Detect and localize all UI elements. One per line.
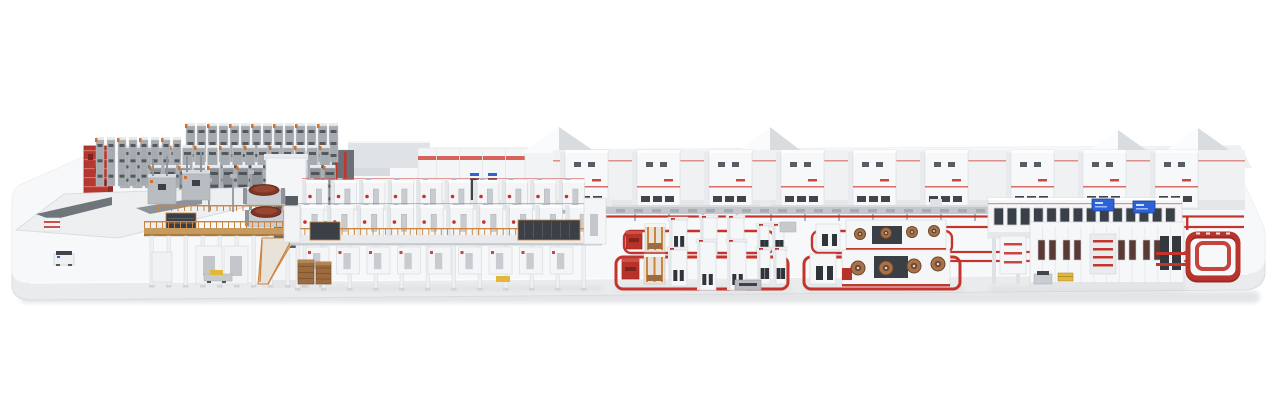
- rack-slot: [326, 172, 335, 175]
- support-column: [452, 242, 456, 288]
- panel: [298, 266, 314, 267]
- column-foot: [399, 288, 405, 291]
- railing-post: [171, 205, 172, 211]
- railing-post: [478, 228, 479, 235]
- rack-cap: [208, 165, 220, 168]
- rack-slot: [153, 144, 158, 147]
- red-valve: [430, 251, 433, 254]
- tall-window: [1049, 240, 1056, 260]
- cabinet-vent: [665, 196, 674, 202]
- mast-head: [230, 174, 236, 178]
- cabinet-handle: [862, 162, 869, 167]
- rack-orange-tick: [194, 146, 197, 150]
- mast: [232, 178, 234, 212]
- rack-slot: [109, 144, 114, 147]
- panel: [563, 180, 585, 183]
- panel: [450, 205, 473, 208]
- rack-slot: [109, 175, 114, 178]
- panel: [56, 264, 60, 266]
- small-cabinet: [44, 218, 60, 231]
- railing-post: [258, 221, 259, 228]
- panel: [709, 150, 752, 153]
- red-shelf: [1004, 252, 1022, 255]
- railing-post: [385, 228, 386, 235]
- board-stack: [760, 200, 770, 206]
- panel: [207, 281, 211, 283]
- red-valve: [565, 195, 569, 199]
- railing-post: [435, 228, 436, 235]
- rack-cap: [150, 165, 162, 168]
- cabinet-vent: [737, 196, 746, 202]
- panel: [281, 188, 285, 204]
- rack-slot: [287, 130, 293, 133]
- rack-slot: [276, 142, 282, 145]
- railing-post: [490, 228, 491, 235]
- rack-orange-tick: [207, 166, 210, 170]
- cabinet-handle: [718, 162, 725, 167]
- cabinet-handle: [646, 162, 653, 167]
- module-vent: [542, 203, 547, 205]
- support-column: [252, 236, 256, 286]
- panel: [200, 152, 202, 172]
- railing-post: [162, 221, 163, 228]
- panel: [551, 222, 552, 238]
- panel: [542, 222, 543, 238]
- rack-slot: [221, 130, 227, 133]
- rack-cap: [219, 123, 228, 126]
- tall-window: [1063, 240, 1070, 260]
- panel: [925, 150, 968, 153]
- panel: [150, 180, 153, 183]
- rack-cap: [129, 137, 137, 140]
- cabinet-vent: [809, 196, 818, 202]
- panel: [168, 218, 194, 219]
- railing-post: [210, 221, 211, 228]
- support-column: [184, 236, 188, 286]
- rack-cap: [223, 165, 235, 168]
- gable-right: [559, 127, 597, 153]
- red-valve: [508, 195, 512, 199]
- column-foot: [347, 288, 353, 291]
- railing-post: [404, 228, 405, 235]
- rack-orange-tick: [317, 124, 320, 128]
- tall-window: [1118, 240, 1125, 260]
- red-valve: [400, 251, 403, 254]
- conveyor-slat: [760, 209, 769, 213]
- conveyor-slat: [832, 209, 841, 213]
- rack-slot: [209, 152, 216, 155]
- row-pinstripe: [297, 203, 592, 204]
- machine-red-base: [842, 284, 950, 287]
- connector-conveyor: [780, 222, 796, 232]
- cabinet-red-stripe: [853, 186, 896, 188]
- rack-slot: [188, 130, 194, 133]
- tower-window: [765, 268, 769, 279]
- panel: [1095, 206, 1107, 208]
- rack-cap: [197, 123, 206, 126]
- tall-window: [1129, 240, 1136, 260]
- conveyor-slat: [652, 209, 661, 213]
- railing-post: [503, 228, 504, 235]
- cabinet-handle: [804, 162, 811, 167]
- railing-post: [249, 205, 250, 211]
- rack-orange-tick: [117, 138, 120, 142]
- railing-post: [472, 228, 473, 235]
- railing-post: [497, 228, 498, 235]
- rack-slot: [175, 144, 180, 147]
- rack-slot: [109, 159, 114, 162]
- rack-slot: [210, 172, 219, 175]
- panel: [565, 150, 608, 153]
- rack-slot: [184, 152, 191, 155]
- module-vent: [338, 178, 343, 180]
- rack-orange-tick: [236, 166, 239, 170]
- railing-post: [184, 205, 185, 211]
- module-side: [386, 205, 390, 236]
- rack-cap: [241, 123, 250, 126]
- railing-post: [252, 221, 253, 228]
- conveyor-slat: [706, 209, 715, 213]
- railing-post: [264, 221, 265, 228]
- rack-slot: [210, 142, 216, 145]
- tower-side: [773, 250, 776, 284]
- railing-post: [165, 205, 166, 211]
- red-valve: [451, 195, 455, 199]
- rack-cap: [252, 165, 264, 168]
- cabinet-handle: [1034, 162, 1041, 167]
- railing-post: [180, 221, 181, 228]
- column-foot: [503, 288, 509, 291]
- rack-slot: [221, 142, 227, 145]
- red-valve: [422, 220, 426, 224]
- cabinet-handle: [660, 162, 667, 167]
- cabinet-vent: [953, 196, 962, 202]
- panel: [1037, 271, 1049, 275]
- panel: [853, 150, 896, 153]
- panel: [420, 180, 442, 183]
- red-valve: [452, 220, 456, 224]
- railing-post: [178, 205, 179, 211]
- display-screen: [1133, 201, 1155, 213]
- railing-post: [276, 221, 277, 228]
- rack-slot: [232, 130, 238, 133]
- panel: [1136, 204, 1144, 206]
- railing-post: [204, 205, 205, 211]
- rack-orange-tick: [294, 146, 297, 150]
- red-valve: [363, 220, 367, 224]
- panel: [335, 180, 357, 183]
- railing-post: [270, 221, 271, 228]
- red-valve: [422, 195, 426, 199]
- rack-orange-tick: [139, 138, 142, 142]
- rack-cap: [183, 145, 193, 148]
- cabinet-vent: [713, 196, 722, 202]
- rack-orange-tick: [273, 124, 276, 128]
- loop-connector: [1156, 263, 1188, 266]
- conveyor-slat: [868, 209, 877, 213]
- rack-slot: [120, 159, 125, 162]
- red-valve: [308, 251, 311, 254]
- module-vent: [453, 203, 458, 205]
- railing-post: [391, 228, 392, 235]
- railing-post: [192, 221, 193, 228]
- railing-post: [236, 205, 237, 211]
- red-unit: [842, 268, 852, 280]
- red-valve: [394, 195, 398, 199]
- panel: [392, 180, 414, 183]
- red-valve: [303, 220, 307, 224]
- panel: [361, 205, 384, 208]
- panel: [988, 198, 1182, 200]
- panel: [539, 205, 562, 208]
- red-valve: [337, 195, 341, 199]
- rack-slot: [322, 152, 329, 155]
- cabinet-handle: [1020, 162, 1027, 167]
- rack-cap: [258, 145, 268, 148]
- rack-slot: [247, 152, 254, 155]
- panel: [301, 205, 324, 208]
- conveyor-slat: [904, 209, 913, 213]
- red-valve: [365, 195, 369, 199]
- module-vent: [537, 178, 542, 180]
- red-valve: [522, 251, 525, 254]
- railing-post: [197, 205, 198, 211]
- cabinet-logo-mark: [1110, 179, 1119, 182]
- rack-slot: [142, 175, 147, 178]
- railing-post: [204, 221, 205, 228]
- panel: [243, 188, 247, 204]
- red-shelf: [1093, 264, 1113, 267]
- conveyor-slat: [958, 209, 967, 213]
- panel: [68, 264, 72, 266]
- cabinet-handle: [574, 162, 581, 167]
- tower-window: [761, 268, 765, 279]
- railing-post: [156, 221, 157, 228]
- panel: [230, 256, 242, 276]
- red-valve: [536, 195, 540, 199]
- rack-slot: [164, 144, 169, 147]
- dark-mesh-panel: [310, 222, 340, 240]
- railing-post: [150, 221, 151, 228]
- panel: [316, 279, 331, 280]
- rack-orange-tick: [229, 124, 232, 128]
- panel: [569, 222, 570, 238]
- column-foot: [183, 285, 189, 288]
- paper-roll-hub: [913, 265, 916, 268]
- module-vent: [334, 203, 339, 205]
- panel: [158, 184, 166, 190]
- column-foot: [529, 288, 535, 291]
- panel: [1030, 282, 1184, 287]
- railing-post: [397, 228, 398, 235]
- cabinet-vent: [1183, 196, 1192, 202]
- rack-cap: [308, 145, 318, 148]
- tall-window: [1143, 240, 1150, 260]
- cabinet-handle: [948, 162, 955, 167]
- railing-post: [354, 228, 355, 235]
- conveyor-slat: [742, 209, 751, 213]
- rack-slot: [199, 142, 205, 145]
- railing-post: [228, 221, 229, 228]
- railing-post: [360, 228, 361, 235]
- rack-slot: [265, 142, 271, 145]
- board-stack: [647, 275, 662, 281]
- railing-post: [515, 228, 516, 235]
- cabinet-handle: [876, 162, 883, 167]
- conveyor-slat: [976, 209, 985, 213]
- rack-cap: [179, 165, 191, 168]
- column-foot: [555, 288, 561, 291]
- cabinet-handle: [934, 162, 941, 167]
- tower-side: [668, 250, 671, 286]
- panel: [645, 224, 665, 227]
- railing-post: [282, 205, 283, 211]
- conveyor-slat: [724, 209, 733, 213]
- module-side: [357, 205, 361, 236]
- box-door: [374, 253, 381, 269]
- panel: [1083, 150, 1126, 153]
- module-vent: [423, 178, 428, 180]
- railing-post: [230, 205, 231, 211]
- railing-post: [223, 205, 224, 211]
- door-sign: [470, 173, 479, 176]
- railing-post: [509, 228, 510, 235]
- conveyor-slat: [688, 209, 697, 213]
- panel: [152, 160, 154, 176]
- rack-slot: [239, 172, 248, 175]
- cabinet-logo-mark: [592, 179, 601, 182]
- paper-roll-hub: [933, 230, 935, 232]
- rack-slot: [222, 152, 229, 155]
- box-door: [496, 253, 503, 269]
- panel: [506, 180, 528, 183]
- module-side: [446, 205, 450, 236]
- rack-slot: [298, 142, 304, 145]
- rack-cap: [310, 165, 322, 168]
- tower-window: [702, 274, 706, 285]
- tower-side: [697, 242, 700, 290]
- rack-orange-tick: [323, 166, 326, 170]
- loop-connector: [1156, 252, 1188, 255]
- cabinet-vent: [869, 196, 878, 202]
- conveyor-slat: [922, 209, 931, 213]
- rack-slot: [254, 130, 260, 133]
- railing-post: [484, 228, 485, 235]
- panel: [626, 231, 642, 234]
- panel: [348, 141, 430, 143]
- panel: [186, 156, 188, 172]
- railing-post: [174, 221, 175, 228]
- rack-slot: [98, 144, 103, 147]
- support-column: [582, 242, 586, 288]
- deck-end-cap: [284, 206, 300, 242]
- tower-window: [674, 236, 678, 247]
- rack-slot: [199, 130, 205, 133]
- red-valve: [339, 251, 342, 254]
- cabinet-vent: [725, 196, 734, 202]
- paper-roll-hub: [885, 232, 887, 234]
- panel: [298, 272, 314, 273]
- rack-cap: [151, 137, 159, 140]
- column-foot: [285, 285, 291, 288]
- rack-orange-tick: [251, 124, 254, 128]
- cabinet-logo-mark: [880, 179, 889, 182]
- column-foot: [451, 288, 457, 291]
- module-vent: [566, 178, 571, 180]
- panel: [637, 150, 680, 153]
- red-valve: [491, 251, 494, 254]
- rack-slot: [175, 159, 180, 162]
- rack-cap: [208, 145, 218, 148]
- paper-roll-hub: [885, 267, 888, 270]
- rack-orange-tick: [207, 124, 210, 128]
- rack-slot: [142, 144, 147, 147]
- red-shelf: [1093, 240, 1113, 243]
- railing-post: [217, 205, 218, 211]
- window-cell: [994, 208, 1004, 225]
- cabinet-logo-mark: [736, 179, 745, 182]
- rack-slot: [243, 130, 249, 133]
- building-leg: [992, 238, 996, 284]
- cabinet-handle: [1164, 162, 1171, 167]
- module-vent: [366, 178, 371, 180]
- rack-orange-tick: [295, 124, 298, 128]
- column-foot: [200, 285, 206, 288]
- rack-slot: [311, 172, 320, 175]
- railing-post: [422, 228, 423, 235]
- railing-post: [342, 228, 343, 235]
- module-vent: [483, 203, 488, 205]
- panel: [477, 180, 499, 183]
- rack-cap: [233, 145, 243, 148]
- rack-slot: [331, 154, 337, 157]
- railing-post: [379, 228, 380, 235]
- row-pinstripe: [302, 178, 585, 179]
- box-door: [557, 253, 564, 269]
- red-shelf: [1093, 248, 1113, 251]
- conveyor-slat: [616, 209, 625, 213]
- red-valve: [552, 251, 555, 254]
- rack-cap: [324, 165, 336, 168]
- cabinet-side: [704, 152, 709, 208]
- tall-window: [1038, 240, 1045, 260]
- dark-mesh-panel: [518, 220, 580, 240]
- rack-slot: [287, 142, 293, 145]
- conveyor-slat: [670, 209, 679, 213]
- tower-window: [680, 236, 684, 247]
- cabinet-side: [848, 152, 853, 208]
- panel: [510, 205, 533, 208]
- rack-slot: [210, 185, 219, 188]
- conveyor-slat: [850, 209, 859, 213]
- agv: [54, 254, 74, 265]
- column-foot: [217, 285, 223, 288]
- railing-post: [168, 221, 169, 228]
- panel: [166, 156, 168, 176]
- gable-left: [521, 127, 559, 153]
- cabinet-vent: [881, 196, 890, 202]
- tower-window: [709, 274, 713, 285]
- module-vent: [423, 203, 428, 205]
- panel: [1058, 276, 1073, 277]
- board-stack: [930, 199, 942, 206]
- module-vent: [452, 178, 457, 180]
- panel: [1155, 150, 1198, 153]
- conveyor-slat: [778, 209, 787, 213]
- panel: [622, 259, 639, 262]
- cabinet-logo-mark: [664, 179, 673, 182]
- rack-orange-tick: [319, 146, 322, 150]
